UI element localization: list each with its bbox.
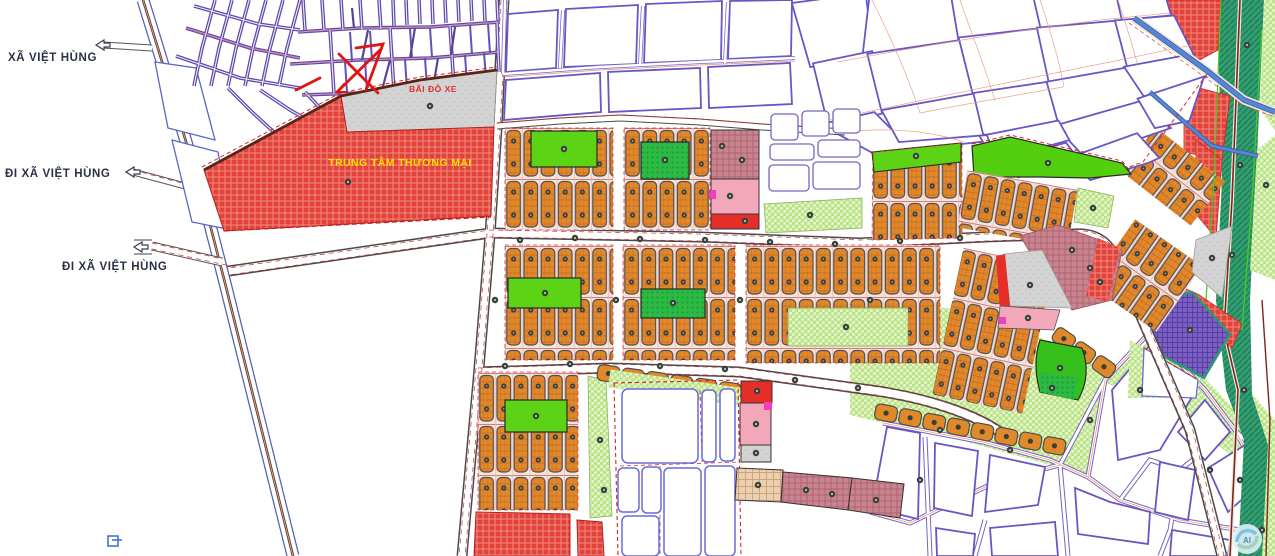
svg-text:AI: AI [1243,536,1251,545]
svg-text:TRUNG TÂM THƯƠNG MẠI: TRUNG TÂM THƯƠNG MẠI [328,156,472,169]
svg-text:ĐI XÃ VIỆT HÙNG: ĐI XÃ VIỆT HÙNG [62,260,167,273]
svg-text:XÃ VIỆT HÙNG: XÃ VIỆT HÙNG [8,51,97,64]
svg-text:BÃI ĐỖ XE: BÃI ĐỖ XE [409,83,457,94]
svg-text:ĐI XÃ VIỆT HÙNG: ĐI XÃ VIỆT HÙNG [5,167,110,180]
